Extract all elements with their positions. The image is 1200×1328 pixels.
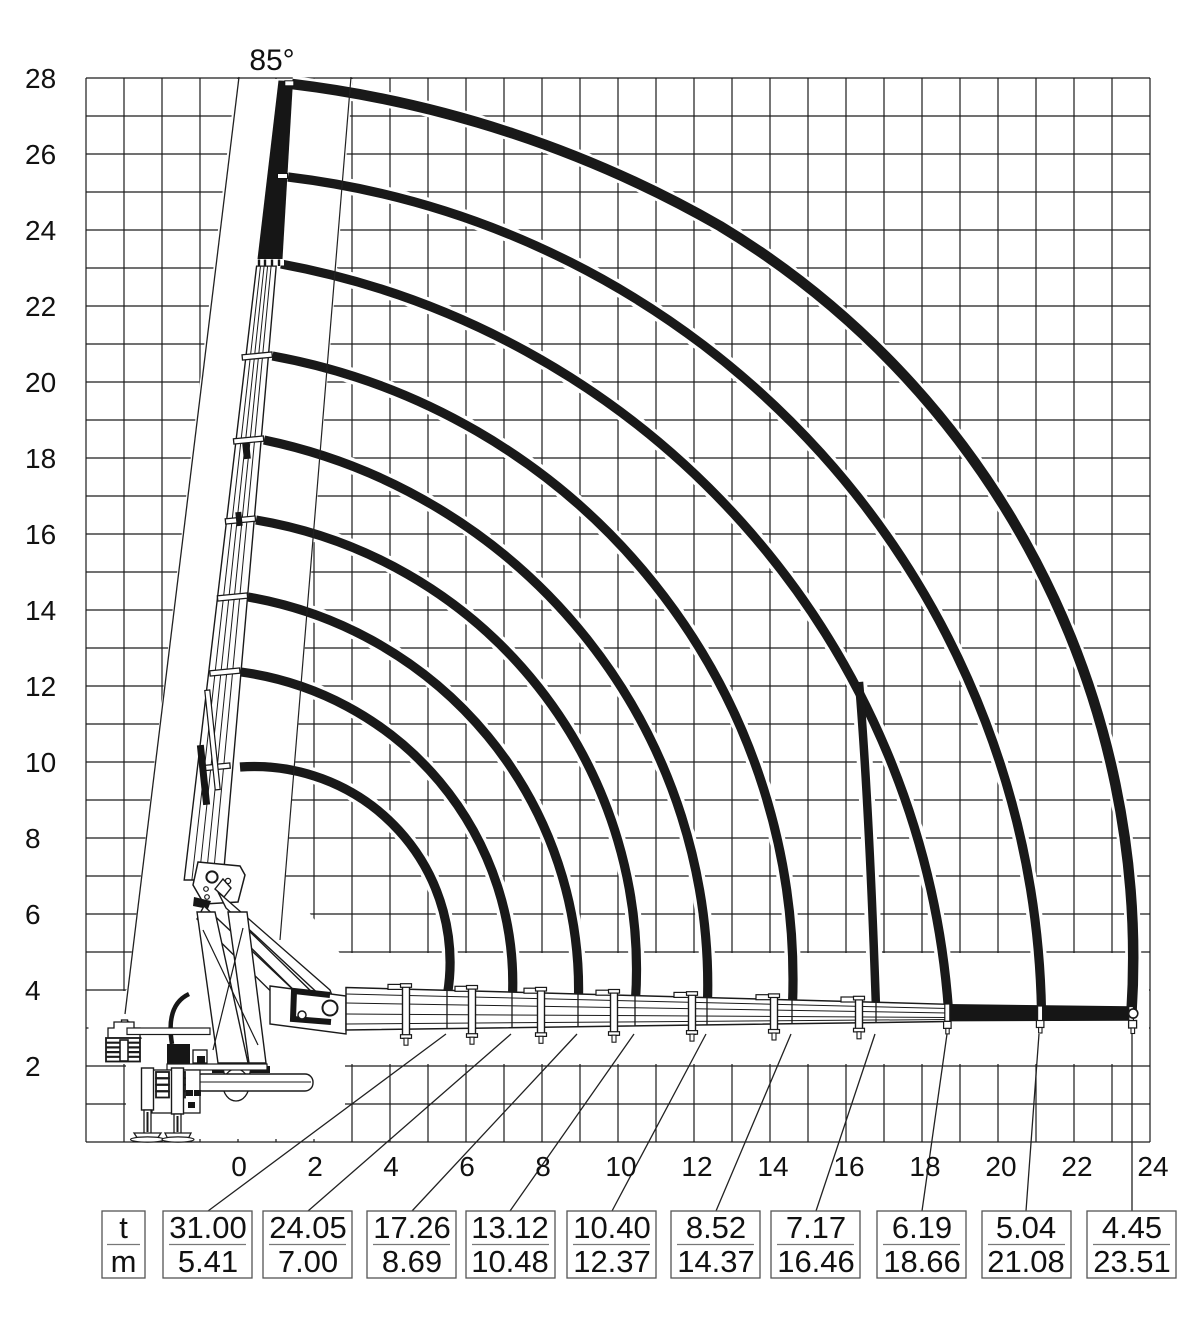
svg-text:17.26: 17.26 bbox=[373, 1210, 451, 1245]
svg-text:7.00: 7.00 bbox=[278, 1244, 338, 1279]
svg-text:16: 16 bbox=[833, 1151, 864, 1182]
svg-text:16: 16 bbox=[25, 519, 56, 550]
svg-text:14.37: 14.37 bbox=[677, 1244, 755, 1279]
svg-text:13.12: 13.12 bbox=[471, 1210, 549, 1245]
svg-text:14: 14 bbox=[757, 1151, 788, 1182]
svg-text:0: 0 bbox=[231, 1151, 247, 1182]
svg-text:4: 4 bbox=[383, 1151, 399, 1182]
svg-text:8: 8 bbox=[25, 823, 41, 854]
svg-text:21.08: 21.08 bbox=[987, 1244, 1065, 1279]
svg-text:23.51: 23.51 bbox=[1093, 1244, 1171, 1279]
svg-text:12: 12 bbox=[681, 1151, 712, 1182]
svg-text:4: 4 bbox=[25, 975, 41, 1006]
svg-text:5.41: 5.41 bbox=[178, 1244, 238, 1279]
svg-text:8: 8 bbox=[535, 1151, 551, 1182]
svg-text:26: 26 bbox=[25, 139, 56, 170]
svg-text:20: 20 bbox=[985, 1151, 1016, 1182]
svg-text:2: 2 bbox=[307, 1151, 323, 1182]
svg-text:6: 6 bbox=[25, 899, 41, 930]
svg-text:8.69: 8.69 bbox=[382, 1244, 442, 1279]
svg-text:10.48: 10.48 bbox=[471, 1244, 549, 1279]
svg-text:18: 18 bbox=[909, 1151, 940, 1182]
svg-text:10.40: 10.40 bbox=[573, 1210, 651, 1245]
svg-text:10: 10 bbox=[25, 747, 56, 778]
svg-text:t: t bbox=[119, 1210, 128, 1245]
svg-text:24: 24 bbox=[25, 215, 56, 246]
svg-text:22: 22 bbox=[25, 291, 56, 322]
svg-text:12.37: 12.37 bbox=[573, 1244, 651, 1279]
svg-text:14: 14 bbox=[25, 595, 56, 626]
svg-text:24.05: 24.05 bbox=[269, 1210, 347, 1245]
svg-text:18.66: 18.66 bbox=[883, 1244, 961, 1279]
svg-text:6: 6 bbox=[459, 1151, 475, 1182]
svg-text:4.45: 4.45 bbox=[1102, 1210, 1162, 1245]
svg-text:16.46: 16.46 bbox=[777, 1244, 855, 1279]
svg-text:5.04: 5.04 bbox=[996, 1210, 1056, 1245]
svg-text:31.00: 31.00 bbox=[169, 1210, 247, 1245]
svg-text:10: 10 bbox=[605, 1151, 636, 1182]
svg-text:22: 22 bbox=[1061, 1151, 1092, 1182]
svg-text:12: 12 bbox=[25, 671, 56, 702]
svg-text:7.17: 7.17 bbox=[786, 1210, 846, 1245]
svg-text:18: 18 bbox=[25, 443, 56, 474]
svg-text:m: m bbox=[111, 1244, 137, 1279]
svg-text:20: 20 bbox=[25, 367, 56, 398]
svg-text:28: 28 bbox=[25, 63, 56, 94]
svg-text:8.52: 8.52 bbox=[686, 1210, 746, 1245]
svg-text:85°: 85° bbox=[249, 44, 294, 77]
svg-text:2: 2 bbox=[25, 1051, 41, 1082]
svg-text:6.19: 6.19 bbox=[892, 1210, 952, 1245]
svg-text:24: 24 bbox=[1137, 1151, 1168, 1182]
